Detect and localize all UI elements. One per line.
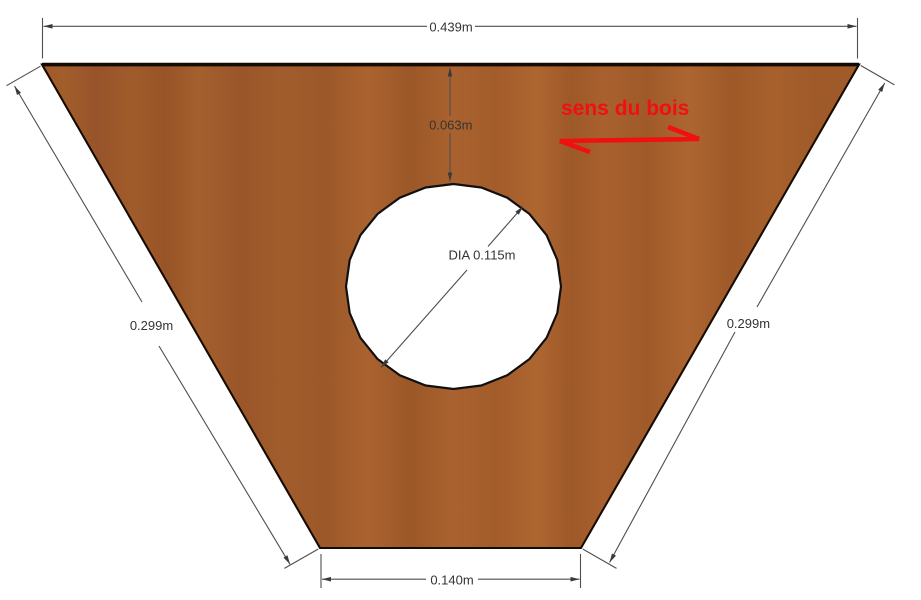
svg-text:0.439m: 0.439m: [429, 20, 472, 35]
svg-text:0.299m: 0.299m: [130, 318, 173, 333]
svg-text:0.063m: 0.063m: [429, 118, 472, 133]
svg-text:sens du bois: sens du bois: [561, 97, 689, 120]
svg-text:0.299m: 0.299m: [727, 316, 770, 331]
svg-text:0.140m: 0.140m: [430, 573, 473, 588]
svg-text:DIA 0.115m: DIA 0.115m: [449, 248, 516, 263]
